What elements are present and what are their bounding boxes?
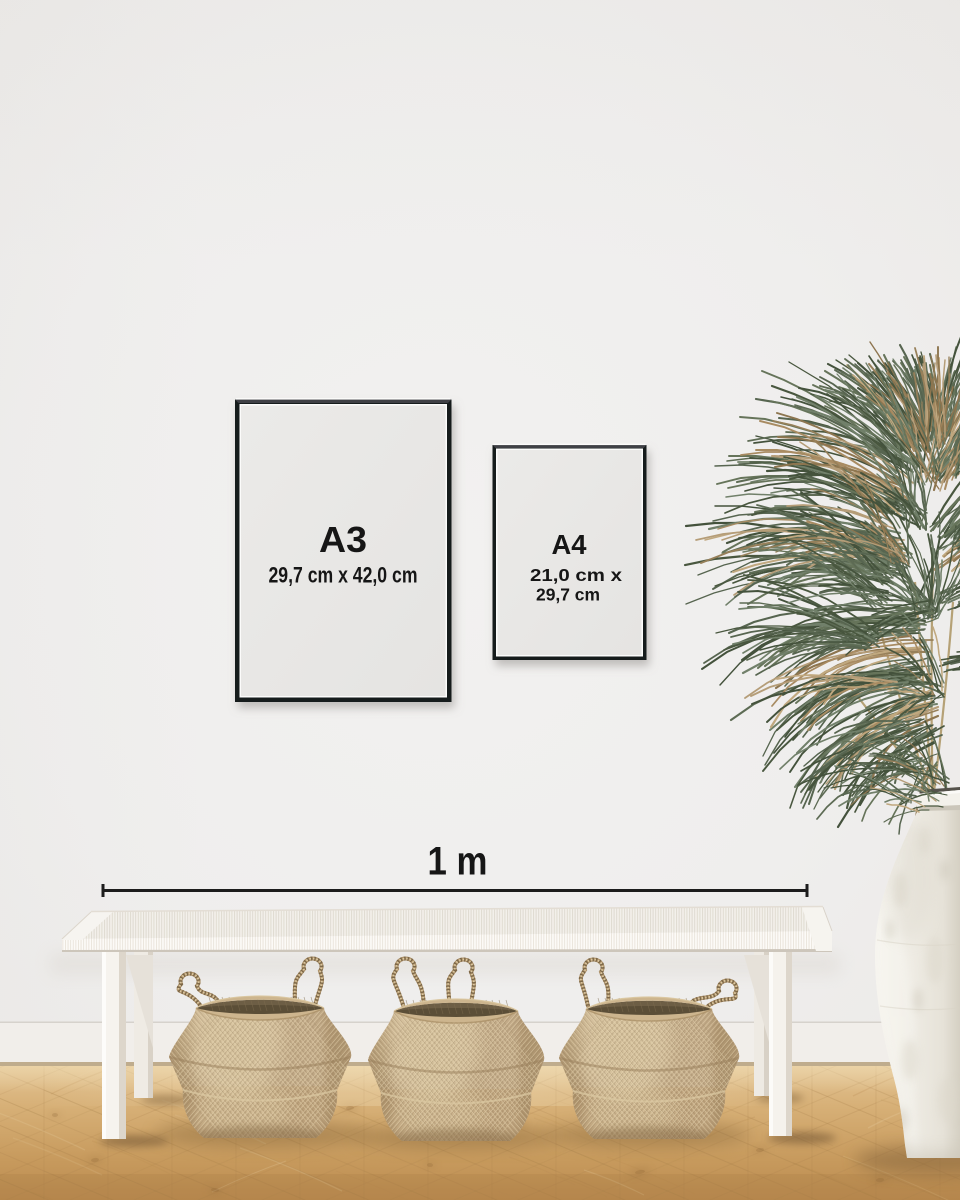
svg-text:1 m: 1 m [428, 840, 488, 884]
svg-text:A4: A4 [552, 529, 588, 560]
svg-text:29,7 cm x 42,0 cm: 29,7 cm x 42,0 cm [269, 563, 418, 588]
svg-text:29,7 cm: 29,7 cm [536, 585, 600, 605]
svg-text:A3: A3 [319, 519, 367, 560]
svg-text:21,0 cm x: 21,0 cm x [530, 565, 622, 585]
